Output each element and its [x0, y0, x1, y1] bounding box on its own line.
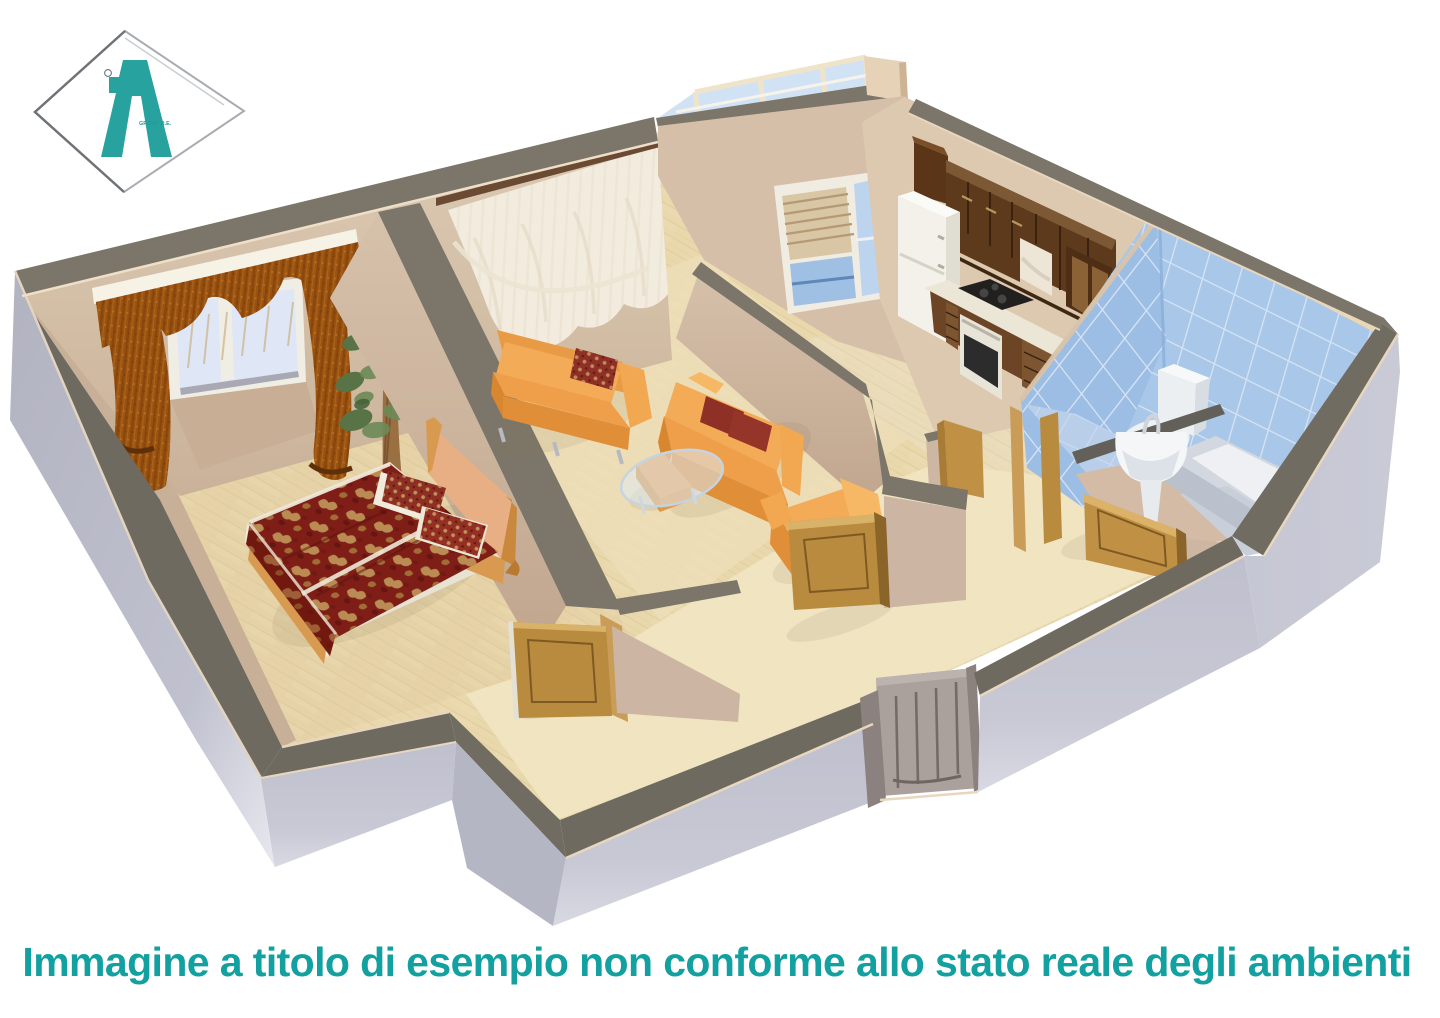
- svg-text:Immagine a titolo di esempio n: Immagine a titolo di esempio non conform…: [22, 939, 1411, 985]
- svg-text:GROUP R.E.: GROUP R.E.: [139, 121, 172, 127]
